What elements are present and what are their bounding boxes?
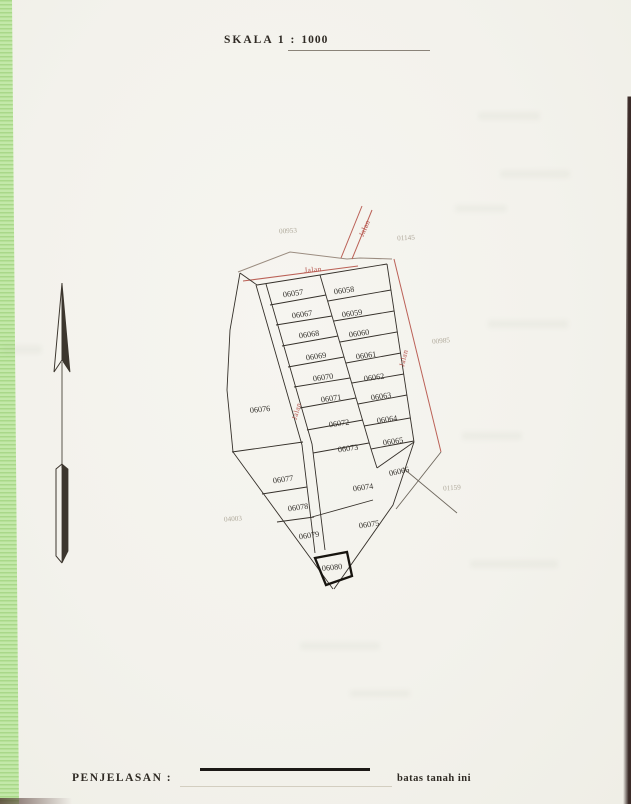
parcel-label: 06062 [363, 372, 385, 384]
parcel-label: 06077 [272, 474, 294, 486]
parcel-label: 06065 [382, 436, 404, 448]
adjacent-parcel-label: 00985 [432, 336, 451, 346]
parcel-label: 06068 [298, 329, 320, 341]
parcel-label: 06061 [355, 350, 377, 362]
parcel-label: 06072 [328, 418, 350, 430]
parcel-label: 06079 [298, 530, 320, 542]
road-label: Jalan [357, 218, 372, 238]
parcel-label: 06080 [321, 562, 342, 573]
parcel-label: 06059 [341, 308, 363, 320]
parcel-label: 06057 [282, 288, 304, 300]
legend-title: PENJELASAN : [72, 772, 172, 784]
adjacent-parcel-label: 04003 [224, 514, 243, 523]
parcel-label: 06073 [337, 443, 359, 455]
road-label: Jalan [397, 349, 410, 368]
road-label: Jalan [304, 264, 322, 274]
parcel-label: 06074 [352, 482, 374, 494]
parcel-label: 06076 [249, 404, 270, 415]
cadastral-map: 06057 06058 06067 06059 06068 06060 0606… [0, 0, 631, 804]
parcel-label: 06078 [287, 502, 309, 514]
parcel-label: 06071 [320, 393, 342, 405]
parcel-label: 06067 [291, 309, 313, 321]
north-arrow-icon [54, 283, 70, 563]
parcel-label: 06058 [333, 285, 355, 297]
parcel-label: 06063 [370, 391, 392, 403]
parcel-label: 06064 [376, 414, 398, 426]
adjacent-parcel-label: 00953 [279, 227, 298, 236]
survey-tie-lines [396, 452, 457, 513]
adjacent-parcel-label: 01159 [443, 483, 462, 492]
legend-description: batas tanah ini [397, 773, 471, 784]
legend-underline [180, 786, 392, 787]
scanned-cadastral-page: { "document": { "scale_label": "SKALA 1 … [0, 0, 631, 804]
parcel-label: 06066 [388, 465, 410, 478]
boundary-symbol-line [200, 768, 370, 771]
parcel-boundary-lines [227, 264, 414, 589]
road-label: Jalan [290, 402, 303, 421]
parcel-number-labels: 06057 06058 06067 06059 06068 06060 0606… [249, 285, 410, 573]
parcel-label: 06070 [312, 372, 334, 384]
adjacent-parcel-label: 01145 [397, 234, 416, 243]
